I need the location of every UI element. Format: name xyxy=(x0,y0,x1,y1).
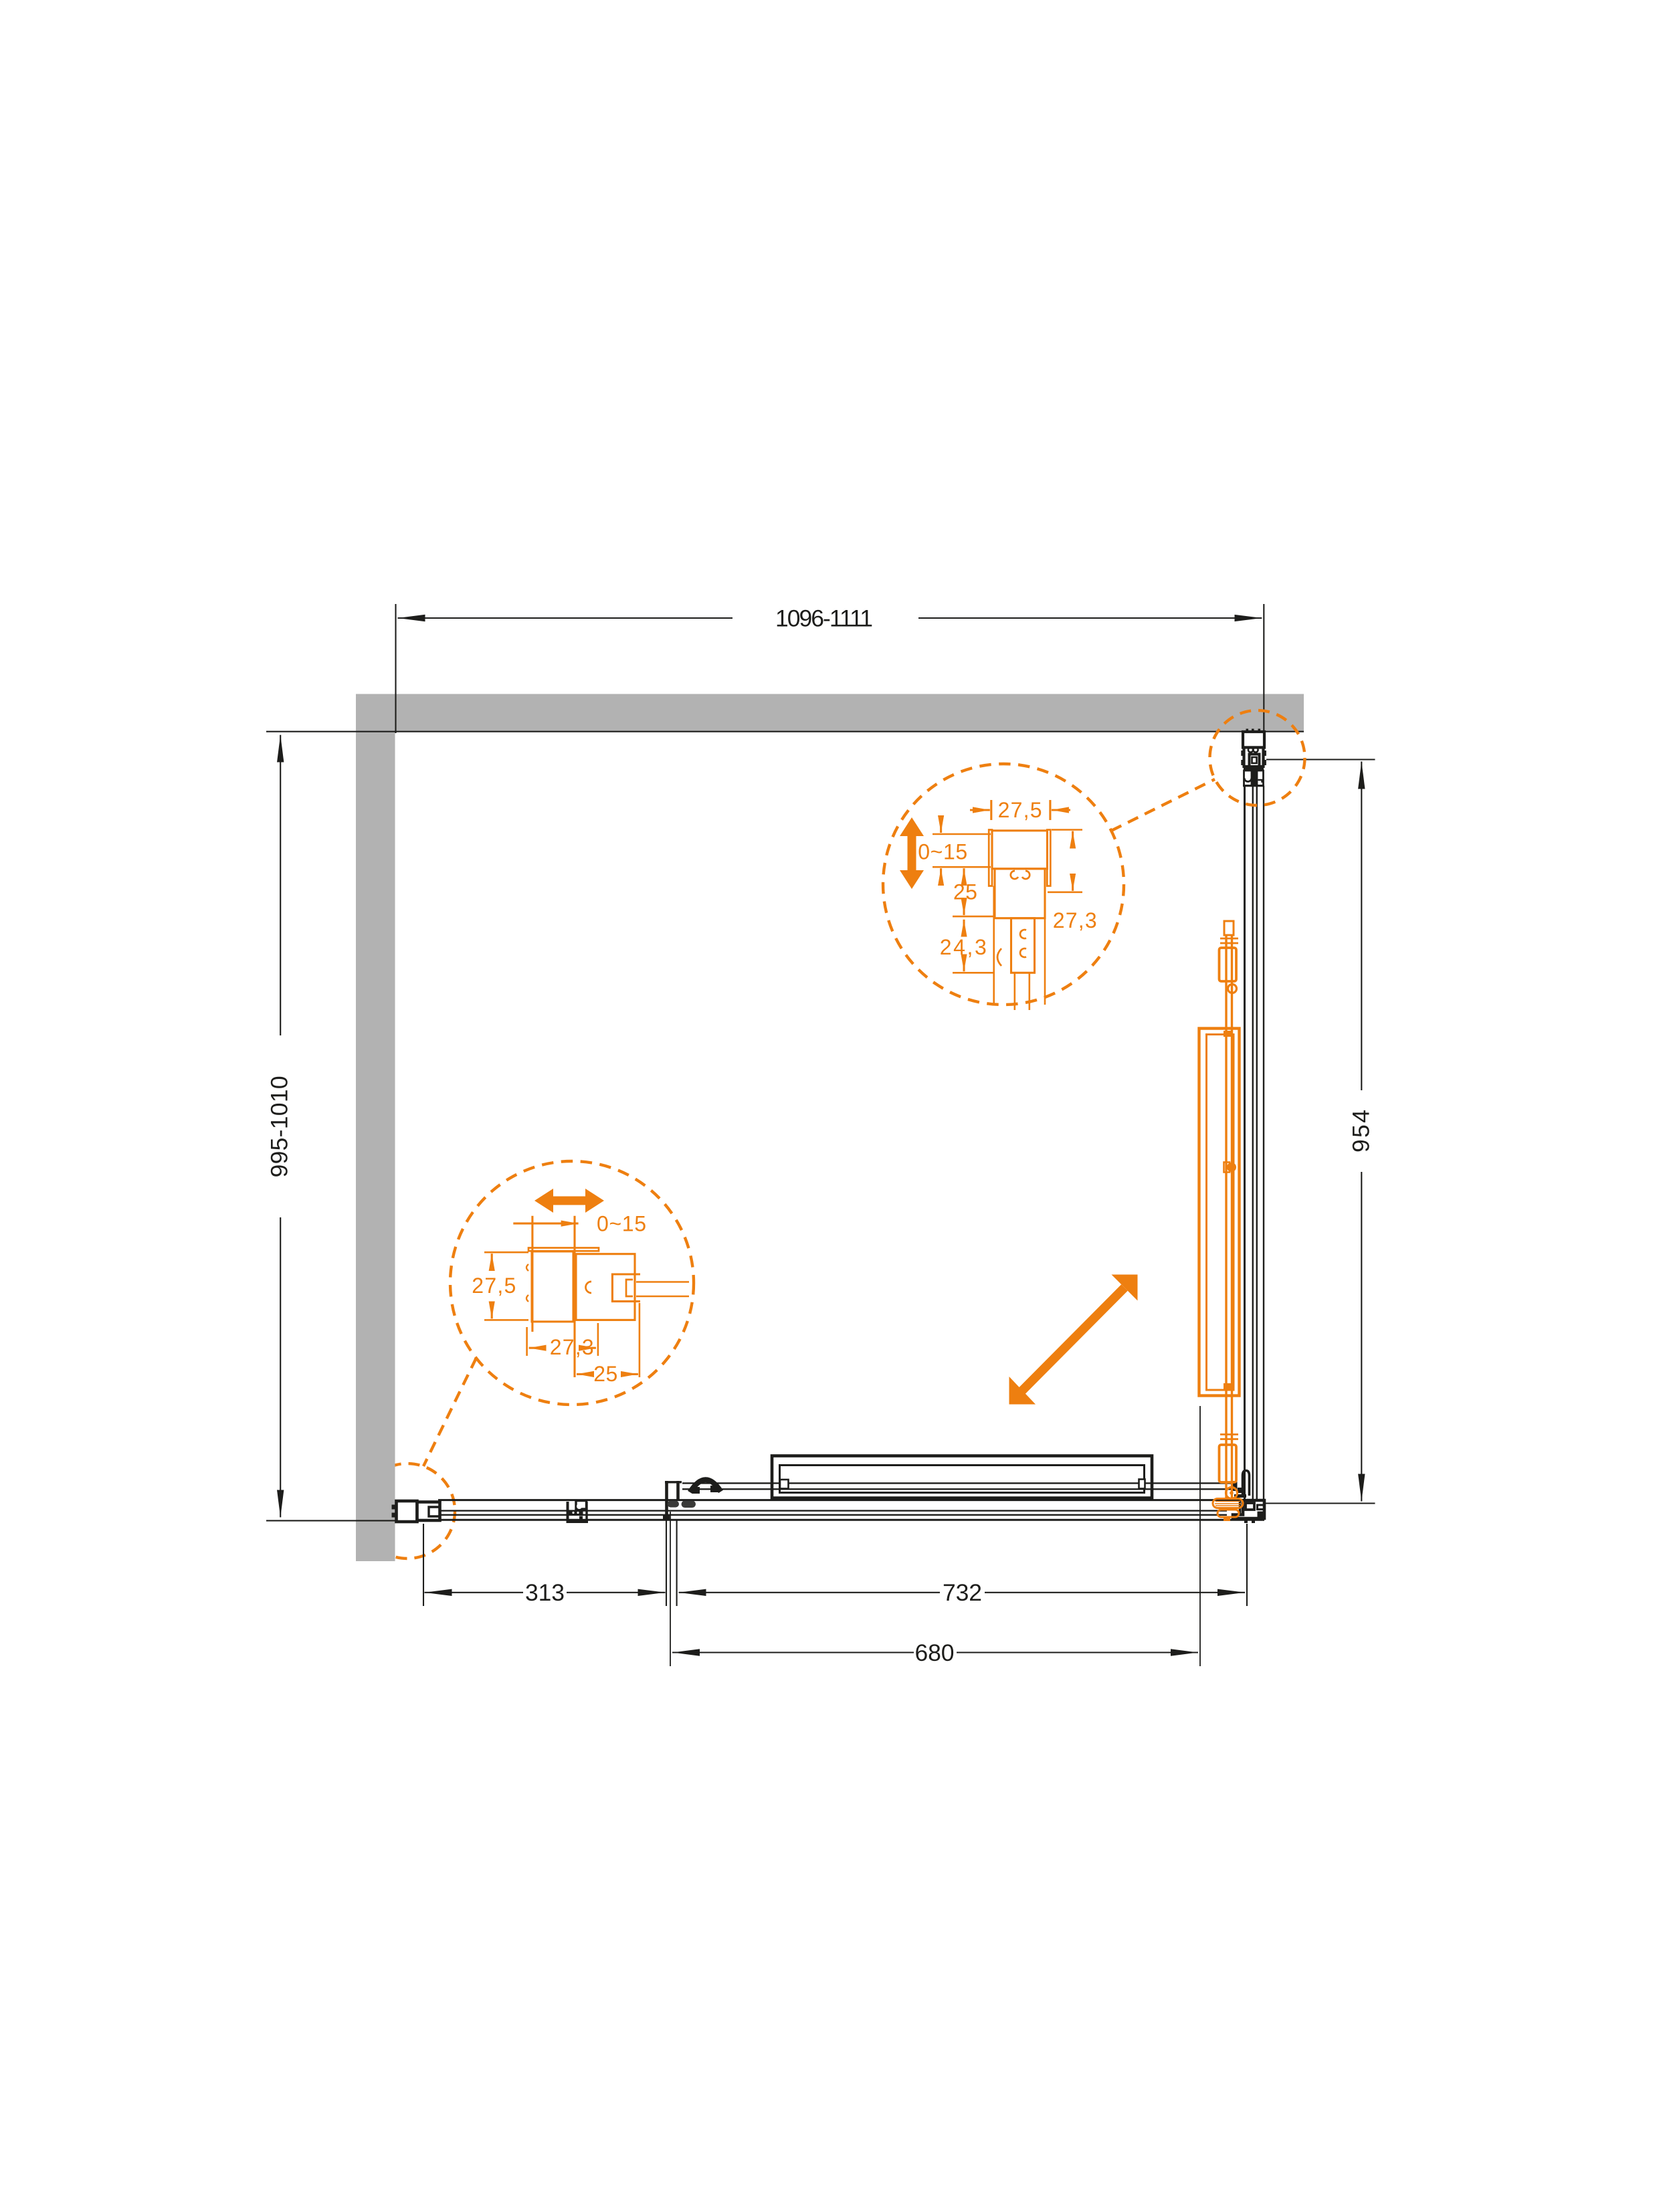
svg-text:1096-1111: 1096-1111 xyxy=(775,605,873,632)
svg-text:0~15: 0~15 xyxy=(918,839,967,864)
svg-text:25: 25 xyxy=(593,1362,617,1386)
svg-text:732: 732 xyxy=(943,1579,982,1606)
svg-text:0~15: 0~15 xyxy=(597,1212,646,1236)
svg-text:27,3: 27,3 xyxy=(1053,908,1097,932)
svg-text:25: 25 xyxy=(953,880,977,904)
svg-text:680: 680 xyxy=(915,1639,955,1666)
svg-text:995-1010: 995-1010 xyxy=(266,1076,293,1177)
svg-text:954: 954 xyxy=(1348,1110,1375,1152)
svg-text:313: 313 xyxy=(525,1579,565,1606)
svg-text:27,5: 27,5 xyxy=(998,798,1042,822)
svg-text:27,3: 27,3 xyxy=(550,1335,594,1359)
svg-text:24,3: 24,3 xyxy=(940,935,987,959)
svg-text:27,5: 27,5 xyxy=(472,1274,516,1298)
